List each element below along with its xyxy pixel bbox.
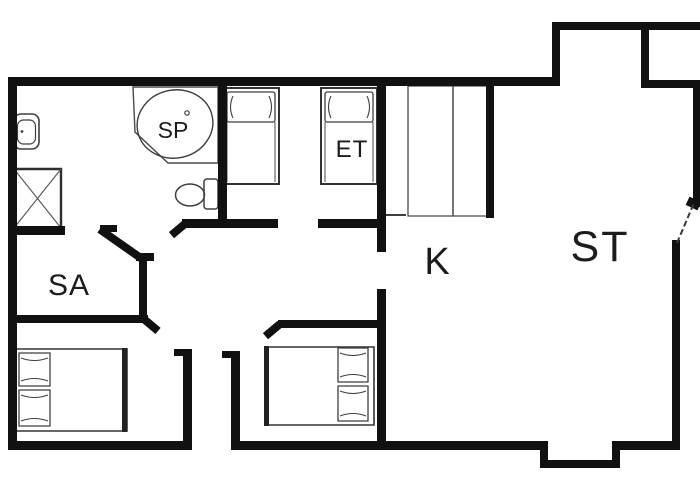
wall-notch-bottom [641,80,700,88]
wardrobe-cabinets [404,82,498,222]
wall-hall-top-east [318,219,386,228]
wall-sauna-east [139,257,147,323]
wall-alcove-left [552,22,560,86]
wall-bottom-right [612,441,680,450]
wall-top-main [8,77,560,86]
door-jamb-sauna-south [142,317,160,334]
wardrobe-base-line [386,214,406,216]
wall-top-right [552,22,700,30]
wall-right-edge [693,80,700,207]
room-label-bedroom-top: ET [330,138,374,162]
wall-bottom-middle [231,441,547,450]
floor-plan: SP ET K ST SA [0,0,700,500]
double-bed-left [12,345,130,435]
room-label-kitchen: K [418,243,456,281]
wall-hall-top-west [182,219,278,228]
wall-bedroom2-north [278,320,386,328]
wall-bedroom2-west [231,351,240,450]
wall-shower-south [8,226,65,235]
double-bed-middle [261,342,379,430]
wall-bathroom-east [218,86,227,227]
door-jamb-bedroom2-corner [263,321,283,339]
door-jamb-bedroom1-top [174,349,188,356]
door-jamb-bedroom2-top [222,351,236,358]
wall-bedroom1-east [183,349,192,450]
room-label-sauna: SA [44,271,94,301]
shower-fixture [10,164,68,234]
wall-bottom-left [8,441,192,450]
wall-notch-left [641,28,649,86]
room-label-living-room: ST [566,226,634,269]
room-label-spa-bath: SP [150,119,196,142]
wall-kitchen-upper [377,86,386,252]
wall-kitchen-lower [377,289,386,450]
wall-wardrobe-east [486,84,494,218]
entrance-door-swing [676,204,694,243]
door-jamb-bathroom [169,220,189,238]
single-bed-1 [219,85,283,187]
wall-st-right [672,240,680,450]
wall-sauna-south [11,315,148,323]
wall-step-bottom [540,460,620,468]
wall-left [8,77,17,450]
toilet-fixture [172,174,222,216]
